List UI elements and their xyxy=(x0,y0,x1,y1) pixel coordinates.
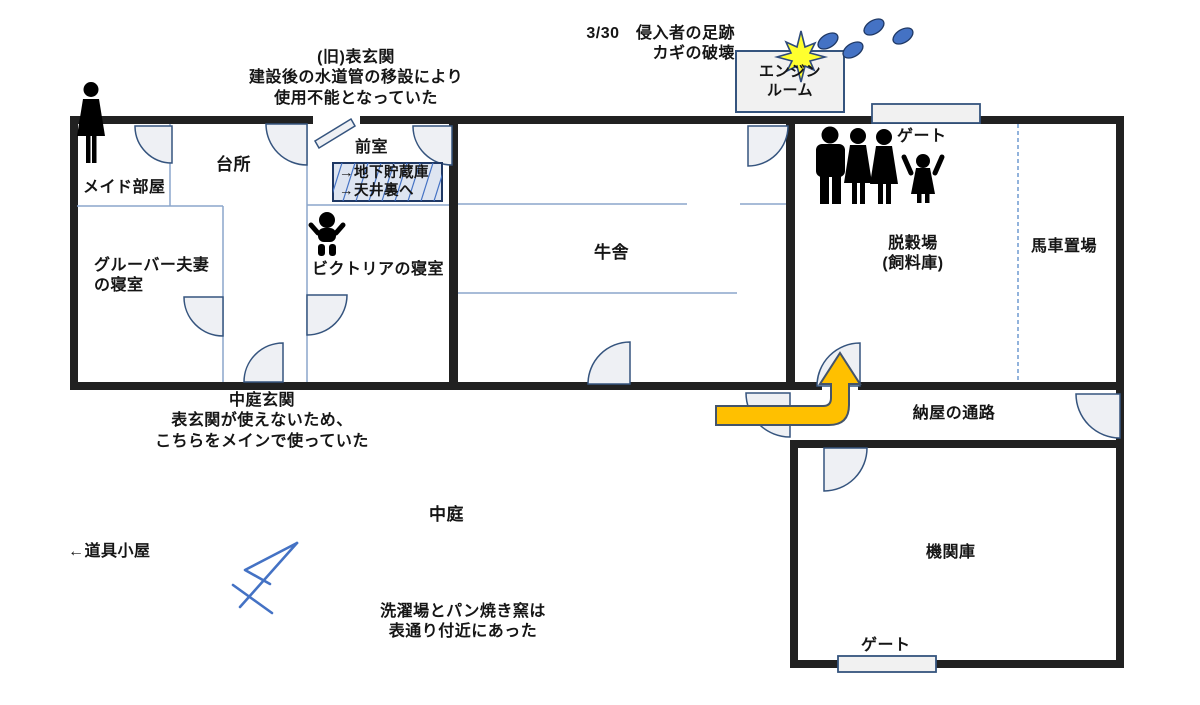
room-label-front-room: 前室 xyxy=(355,138,388,158)
label-gate-bottom: ゲート xyxy=(861,636,911,656)
annotation-courtyard-entrance: 中庭玄関 表玄関が使えないため、 こちらをメインで使っていた xyxy=(112,391,412,452)
door-victoria-bedroom xyxy=(307,295,347,335)
door-kitchen-frontroom xyxy=(266,124,307,165)
room-label-cowshed: 牛舎 xyxy=(594,242,629,264)
wall-right xyxy=(1116,116,1124,668)
label-tool-shed: ←道具小屋 xyxy=(68,542,151,562)
label-storage-sign: →地下貯蔵庫 →天井裏へ xyxy=(339,165,429,200)
door-courtyard-entrance xyxy=(244,343,283,382)
door-frontroom-east xyxy=(413,126,452,165)
wall-left xyxy=(70,116,78,390)
annotation-old-front-entrance: (旧)表玄関 建設後の水道管の移設により 使用不能となっていた xyxy=(196,48,516,109)
wall-cowshed-right xyxy=(786,116,795,390)
floor-plan-canvas: (旧)表玄関 建設後の水道管の移設により 使用不能となっていた 3/30 侵入者… xyxy=(0,0,1200,705)
door-cowshed-south xyxy=(588,342,630,384)
hand-drawn-compass-arrow xyxy=(233,543,297,613)
room-label-threshing-floor: 脱穀場 (飼料庫) xyxy=(843,234,983,275)
wall-top-right xyxy=(360,116,1123,124)
woman-silhouette-icon xyxy=(77,82,105,163)
baby-icon xyxy=(311,212,343,256)
wall-engine-shed-left xyxy=(790,440,798,668)
door-maid-room xyxy=(135,126,172,163)
room-label-victoria-bedroom: ビクトリアの寝室 xyxy=(312,260,444,280)
door-old-front-entrance-tilted xyxy=(315,119,355,148)
wall-threshing-bottom xyxy=(858,382,1123,390)
room-label-kitchen: 台所 xyxy=(216,154,251,176)
room-label-carriage-shed: 馬車置場 xyxy=(1031,237,1097,257)
room-label-engine-shed: 機関庫 xyxy=(926,543,976,563)
label-courtyard: 中庭 xyxy=(429,504,464,526)
wall-bottom-left-run xyxy=(70,382,822,390)
annotation-intruder-note: 3/30 侵入者の足跡 カギの破壊 xyxy=(545,24,735,65)
room-label-barn-passage: 納屋の通路 xyxy=(884,404,1024,424)
wall-top-left xyxy=(70,116,313,124)
door-gruber-bedroom xyxy=(184,297,223,336)
room-label-gruber-bedroom: グルーバー夫妻 の寝室 xyxy=(94,256,209,297)
annotation-laundry-note: 洗濯場とパン焼き窯は 表通り付近にあった xyxy=(313,602,613,643)
door-engine-shed xyxy=(824,448,867,491)
room-label-maid-room: メイド部屋 xyxy=(83,178,166,198)
floor-plan-drawing xyxy=(0,0,1200,705)
door-passage-east xyxy=(1076,394,1120,438)
gate-top-rect xyxy=(872,104,980,123)
door-engine-room xyxy=(748,126,788,166)
room-label-engine-room: エンジン ルーム xyxy=(736,62,844,100)
gate-bottom-rect xyxy=(838,656,936,672)
wall-passage-bottom xyxy=(790,440,1123,448)
label-gate-top: ゲート xyxy=(897,127,947,147)
